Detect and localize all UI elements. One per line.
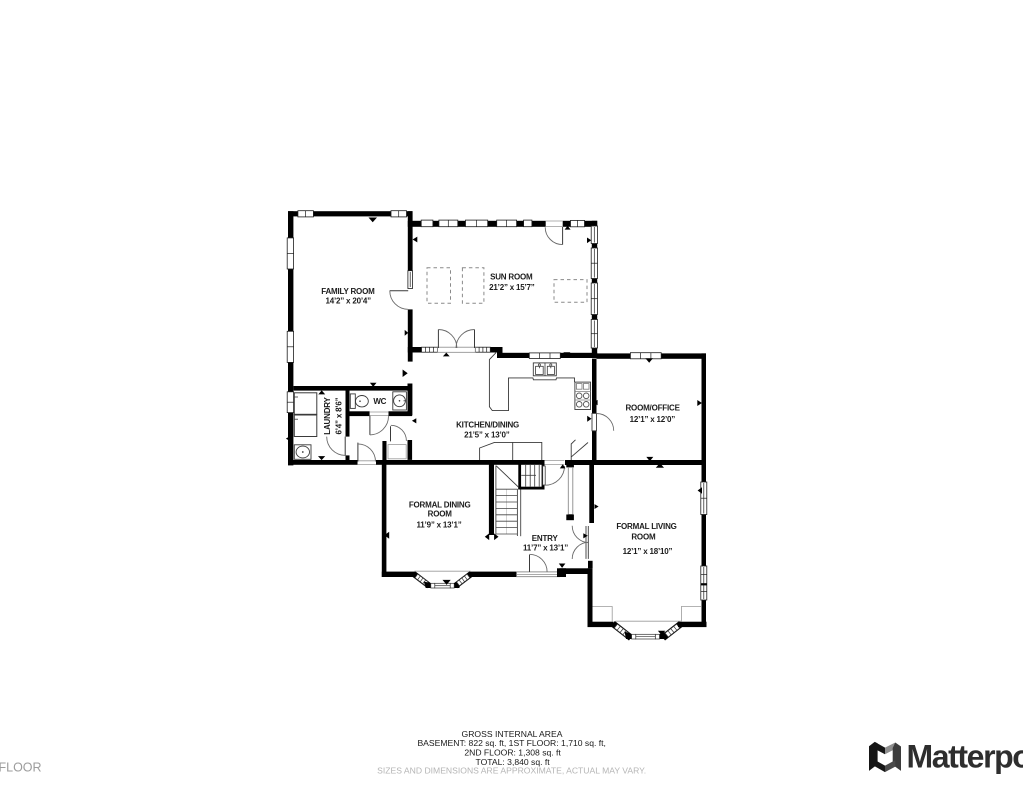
svg-text:ROOM/OFFICE: ROOM/OFFICE (625, 404, 680, 413)
svg-text:KITCHEN/DINING: KITCHEN/DINING (456, 420, 519, 429)
svg-text:Matterport: Matterport (907, 738, 1023, 774)
svg-text:FLOOR: FLOOR (0, 761, 42, 775)
svg-text:FORMAL LIVING: FORMAL LIVING (616, 522, 676, 531)
svg-text:FORMAL DINING: FORMAL DINING (409, 500, 471, 509)
svg-text:SUN ROOM: SUN ROOM (490, 273, 533, 282)
svg-text:11’7” x 13’1”: 11’7” x 13’1” (523, 544, 568, 553)
svg-text:FAMILY ROOM: FAMILY ROOM (321, 287, 375, 296)
svg-text:21’5” x 13’0”: 21’5” x 13’0” (464, 431, 510, 440)
svg-text:SIZES AND DIMENSIONS ARE APPRO: SIZES AND DIMENSIONS ARE APPROXIMATE, AC… (377, 765, 646, 775)
svg-text:BASEMENT: 822 sq. ft, 1ST FLOO: BASEMENT: 822 sq. ft, 1ST FLOOR: 1,710 s… (417, 738, 606, 748)
svg-text:ENTRY: ENTRY (532, 534, 559, 543)
svg-text:21’2” x 15’7”: 21’2” x 15’7” (489, 283, 535, 292)
svg-text:LAUNDRY: LAUNDRY (323, 396, 332, 434)
svg-text:12’1” x 18’10”: 12’1” x 18’10” (623, 547, 673, 556)
svg-text:14’2” x 20’4”: 14’2” x 20’4” (325, 297, 371, 306)
svg-text:ROOM: ROOM (428, 510, 453, 519)
svg-text:6’4” x 8’6”: 6’4” x 8’6” (335, 397, 344, 434)
svg-text:11’9” x 13’1”: 11’9” x 13’1” (417, 520, 462, 529)
svg-text:12’1” x 12’0”: 12’1” x 12’0” (630, 415, 676, 424)
svg-text:WC: WC (373, 397, 386, 406)
svg-text:ROOM: ROOM (631, 533, 656, 542)
